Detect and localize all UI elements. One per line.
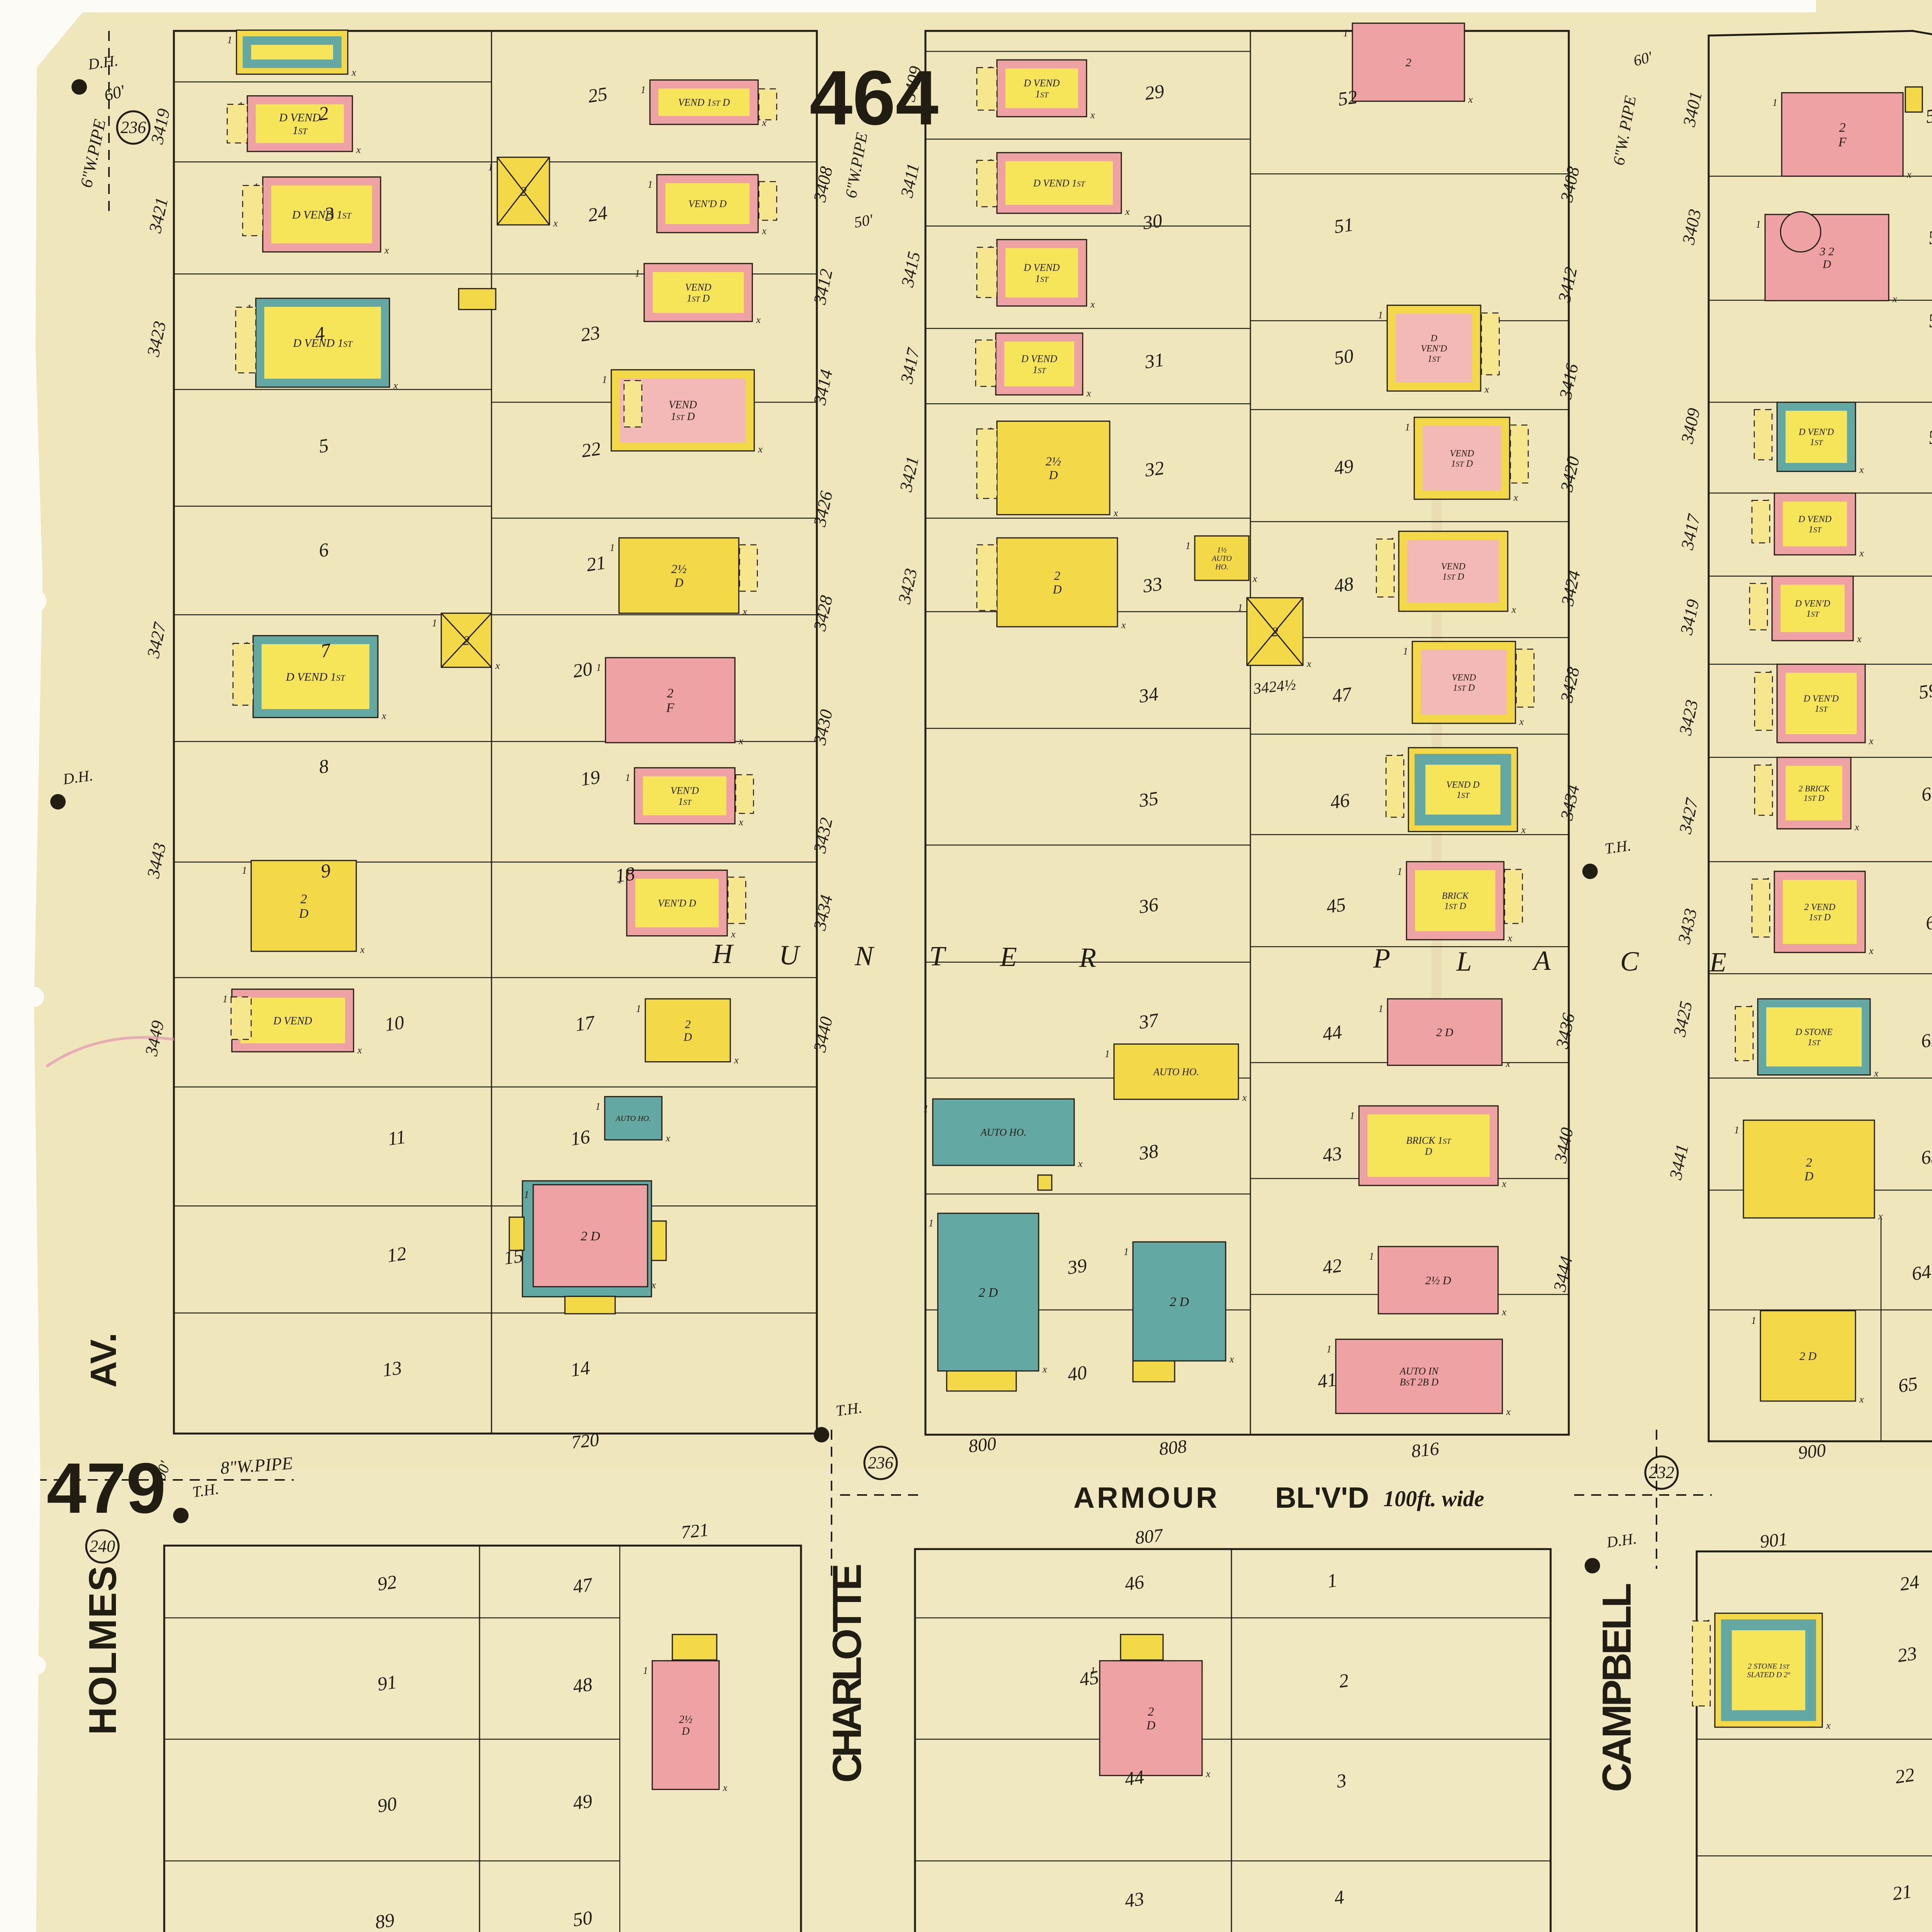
svg-text:x: x	[1206, 1768, 1211, 1779]
svg-text:1ST: 1ST	[1815, 704, 1828, 714]
svg-text:1: 1	[524, 1189, 529, 1200]
svg-text:1: 1	[1378, 1003, 1383, 1014]
svg-text:18: 18	[614, 862, 636, 886]
svg-text:x: x	[1468, 94, 1473, 105]
svg-text:1ST: 1ST	[1808, 525, 1822, 535]
svg-text:2: 2	[1806, 1155, 1812, 1169]
svg-text:2½ D: 2½ D	[1425, 1274, 1451, 1287]
svg-text:23: 23	[1896, 1642, 1918, 1666]
svg-text:AUTO: AUTO	[1211, 554, 1232, 563]
svg-text:2 D: 2 D	[978, 1286, 998, 1300]
svg-text:AUTO HO.: AUTO HO.	[1153, 1066, 1199, 1078]
svg-text:1: 1	[1327, 1344, 1332, 1355]
svg-text:A: A	[1532, 945, 1551, 976]
svg-text:236: 236	[868, 1453, 893, 1472]
svg-text:x: x	[1906, 169, 1912, 180]
svg-text:31: 31	[1143, 349, 1165, 373]
svg-text:1ST: 1ST	[1456, 790, 1470, 800]
svg-text:34: 34	[1137, 683, 1160, 707]
svg-text:89: 89	[374, 1909, 396, 1932]
svg-text:x: x	[1505, 1058, 1510, 1069]
svg-text:1: 1	[1405, 422, 1410, 433]
svg-text:49: 49	[1333, 455, 1355, 479]
svg-text:1: 1	[643, 1665, 648, 1676]
svg-text:1ST: 1ST	[1808, 1037, 1821, 1048]
svg-text:50: 50	[1333, 345, 1355, 369]
svg-text:1: 1	[1369, 1251, 1374, 1262]
svg-text:CHARLOTTE: CHARLOTTE	[825, 1565, 870, 1782]
svg-text:x: x	[1242, 1092, 1247, 1103]
svg-text:D: D	[1048, 468, 1058, 482]
svg-text:x: x	[1859, 548, 1864, 559]
svg-text:24: 24	[587, 202, 609, 226]
svg-text:N: N	[854, 940, 875, 971]
svg-text:47: 47	[1331, 683, 1354, 707]
svg-text:1: 1	[1403, 646, 1408, 657]
svg-text:20: 20	[571, 658, 594, 682]
svg-text:T.H.: T.H.	[191, 1480, 220, 1501]
svg-text:1: 1	[1751, 1315, 1756, 1326]
svg-text:D VEN'D: D VEN'D	[1794, 599, 1830, 609]
svg-text:x: x	[651, 1279, 656, 1291]
svg-text:x: x	[723, 1782, 728, 1793]
svg-text:52: 52	[1337, 86, 1359, 110]
svg-text:VEND 1ST D: VEND 1ST D	[678, 97, 730, 108]
svg-text:VEND: VEND	[685, 282, 711, 293]
svg-text:D: D	[1052, 582, 1061, 596]
svg-text:x: x	[553, 218, 558, 229]
svg-text:19: 19	[579, 766, 601, 790]
svg-text:HO.: HO.	[1215, 563, 1228, 571]
svg-text:D VEND: D VEND	[1023, 77, 1060, 88]
svg-text:808: 808	[1158, 1436, 1188, 1459]
svg-text:C: C	[1620, 946, 1639, 977]
svg-text:1: 1	[223, 993, 228, 1005]
svg-text:21: 21	[585, 551, 607, 575]
svg-text:R: R	[1079, 942, 1096, 973]
svg-text:2 D: 2 D	[581, 1229, 600, 1243]
svg-text:49: 49	[571, 1790, 594, 1814]
svg-text:x: x	[1511, 604, 1516, 615]
svg-text:D: D	[1804, 1169, 1813, 1183]
svg-text:51: 51	[1333, 213, 1355, 237]
svg-text:90: 90	[376, 1793, 398, 1816]
svg-text:D VEND: D VEND	[273, 1015, 312, 1027]
svg-text:22: 22	[1894, 1764, 1916, 1787]
svg-text:800: 800	[968, 1433, 997, 1456]
svg-text:E: E	[1000, 941, 1017, 972]
svg-text:AUTO IN: AUTO IN	[1399, 1366, 1439, 1377]
svg-text:59: 59	[1917, 679, 1932, 703]
svg-text:2: 2	[1406, 56, 1412, 69]
svg-text:64: 64	[1910, 1260, 1932, 1284]
svg-text:x: x	[351, 67, 356, 78]
svg-text:47: 47	[571, 1573, 594, 1598]
svg-text:1: 1	[610, 542, 615, 553]
svg-text:1½: 1½	[1217, 546, 1227, 554]
svg-text:x: x	[1513, 492, 1518, 503]
svg-text:92: 92	[376, 1571, 398, 1595]
svg-text:32: 32	[1143, 457, 1165, 481]
svg-text:2: 2	[301, 892, 307, 906]
svg-text:1: 1	[648, 179, 653, 190]
svg-text:x: x	[393, 380, 398, 391]
svg-text:100ft. wide: 100ft. wide	[1383, 1486, 1484, 1511]
svg-text:x: x	[1252, 573, 1257, 584]
svg-text:2½: 2½	[679, 1714, 692, 1726]
svg-text:11: 11	[386, 1126, 407, 1150]
svg-text:48: 48	[571, 1673, 594, 1697]
svg-text:x: x	[1484, 384, 1489, 395]
svg-text:65: 65	[1897, 1372, 1919, 1396]
svg-text:43: 43	[1321, 1142, 1343, 1166]
svg-text:x: x	[495, 660, 500, 671]
svg-text:2: 2	[1272, 625, 1278, 639]
svg-text:1: 1	[1772, 97, 1777, 108]
svg-text:1: 1	[635, 268, 640, 279]
svg-text:x: x	[1826, 1720, 1831, 1731]
svg-text:VEND D: VEND D	[1446, 780, 1480, 790]
svg-text:2½: 2½	[671, 562, 687, 576]
svg-text:2: 2	[667, 686, 673, 701]
svg-text:240: 240	[90, 1537, 115, 1556]
svg-text:91: 91	[376, 1671, 398, 1695]
svg-text:2: 2	[463, 634, 470, 648]
svg-text:1: 1	[929, 1218, 934, 1229]
svg-text:1: 1	[625, 772, 630, 783]
svg-text:1: 1	[641, 84, 646, 95]
svg-text:AUTO HO.: AUTO HO.	[980, 1127, 1026, 1138]
svg-text:479: 479	[47, 1449, 166, 1528]
svg-text:1: 1	[595, 1101, 600, 1112]
svg-text:816: 816	[1410, 1438, 1440, 1461]
svg-text:15: 15	[502, 1245, 524, 1269]
svg-text:x: x	[1506, 1406, 1511, 1417]
svg-text:P: P	[1373, 943, 1390, 974]
svg-text:x: x	[1090, 109, 1095, 121]
svg-text:2: 2	[520, 184, 527, 199]
svg-text:44: 44	[1123, 1766, 1145, 1790]
svg-text:F: F	[1838, 135, 1847, 150]
svg-text:33: 33	[1141, 573, 1163, 597]
svg-text:901: 901	[1759, 1529, 1789, 1552]
svg-text:D: D	[299, 906, 309, 921]
svg-text:T.H.: T.H.	[835, 1399, 863, 1420]
svg-text:D: D	[674, 575, 683, 589]
svg-text:x: x	[758, 444, 763, 455]
svg-text:39: 39	[1066, 1254, 1088, 1279]
svg-text:2: 2	[685, 1018, 691, 1031]
svg-text:14: 14	[569, 1357, 591, 1381]
svg-text:D VEN'D: D VEN'D	[1803, 694, 1838, 704]
svg-text:x: x	[384, 245, 389, 256]
svg-text:x: x	[738, 735, 743, 747]
svg-text:1: 1	[1350, 1110, 1355, 1121]
svg-text:48: 48	[1333, 573, 1355, 597]
svg-text:HOLMES: HOLMES	[81, 1565, 124, 1735]
svg-text:29: 29	[1143, 80, 1165, 104]
svg-text:2: 2	[1839, 121, 1846, 135]
svg-text:x: x	[1507, 932, 1512, 944]
svg-text:2 STONE 1ST: 2 STONE 1ST	[1748, 1662, 1790, 1671]
svg-text:46: 46	[1329, 789, 1351, 813]
svg-text:1: 1	[227, 34, 232, 46]
svg-text:ARMOUR: ARMOUR	[1073, 1481, 1219, 1514]
svg-text:35: 35	[1137, 787, 1160, 811]
svg-text:2 D: 2 D	[1799, 1350, 1817, 1363]
svg-text:BL'V'D: BL'V'D	[1275, 1481, 1369, 1514]
svg-text:2 BRICK: 2 BRICK	[1798, 784, 1830, 793]
svg-text:721: 721	[680, 1519, 710, 1543]
svg-text:2 D: 2 D	[1170, 1295, 1189, 1309]
svg-text:x: x	[1892, 293, 1897, 304]
svg-text:22: 22	[580, 437, 602, 461]
svg-text:x: x	[357, 1044, 362, 1056]
svg-text:x: x	[665, 1133, 670, 1144]
svg-text:3 2: 3 2	[1819, 245, 1834, 258]
svg-text:VEN'D: VEN'D	[670, 785, 699, 796]
svg-text:1: 1	[636, 1003, 641, 1014]
svg-text:x: x	[1869, 945, 1874, 956]
svg-text:x: x	[1502, 1178, 1507, 1189]
svg-text:40: 40	[1066, 1361, 1088, 1385]
svg-text:13: 13	[381, 1357, 403, 1381]
svg-text:1: 1	[923, 1103, 929, 1114]
svg-text:38: 38	[1137, 1140, 1160, 1164]
svg-text:D VEND: D VEND	[279, 111, 321, 124]
svg-text:1ST: 1ST	[1810, 437, 1823, 447]
svg-text:VEN'D D: VEN'D D	[658, 898, 696, 909]
svg-text:900: 900	[1797, 1440, 1827, 1463]
svg-text:D VEND: D VEND	[1798, 514, 1832, 524]
svg-text:VEND: VEND	[668, 399, 697, 411]
svg-text:10: 10	[383, 1011, 405, 1035]
svg-text:25: 25	[587, 83, 609, 107]
svg-text:1: 1	[1343, 27, 1348, 39]
svg-text:x: x	[1090, 299, 1095, 310]
svg-text:44: 44	[1321, 1021, 1343, 1045]
svg-text:D: D	[1146, 1718, 1155, 1732]
svg-text:x: x	[742, 606, 747, 617]
svg-text:50: 50	[571, 1906, 594, 1930]
svg-text:2 D: 2 D	[1436, 1026, 1454, 1039]
svg-text:BST 2B D: BST 2B D	[1400, 1376, 1439, 1388]
svg-text:SLATED D 2º: SLATED D 2º	[1747, 1671, 1790, 1679]
svg-text:1ST D: 1ST D	[1804, 793, 1825, 803]
svg-text:x: x	[756, 314, 761, 325]
svg-text:1ST D: 1ST D	[1444, 901, 1466, 912]
svg-text:H: H	[712, 938, 734, 969]
svg-text:45: 45	[1078, 1666, 1100, 1690]
svg-text:1: 1	[1734, 1124, 1739, 1136]
svg-text:D: D	[1822, 258, 1831, 271]
svg-text:x: x	[1113, 507, 1118, 519]
svg-text:D VEN'D: D VEN'D	[1798, 427, 1834, 437]
svg-text:x: x	[738, 816, 743, 828]
svg-text:16: 16	[569, 1126, 591, 1150]
svg-text:BRICK: BRICK	[1442, 891, 1469, 901]
svg-text:43: 43	[1123, 1888, 1145, 1912]
svg-text:x: x	[1125, 206, 1130, 217]
svg-text:236: 236	[121, 118, 146, 137]
svg-text:CAMPBELL: CAMPBELL	[1594, 1584, 1639, 1792]
svg-text:2 VEND: 2 VEND	[1804, 902, 1835, 912]
svg-text:1ST: 1ST	[1806, 609, 1820, 619]
svg-text:x: x	[1521, 824, 1526, 835]
svg-text:12: 12	[386, 1242, 408, 1266]
svg-text:x: x	[360, 944, 365, 955]
svg-text:41: 41	[1316, 1368, 1338, 1392]
svg-text:x: x	[1874, 1068, 1879, 1079]
svg-text:x: x	[1859, 464, 1864, 475]
svg-text:x: x	[381, 710, 386, 721]
svg-text:1: 1	[1124, 1246, 1129, 1257]
svg-text:x: x	[1121, 619, 1126, 631]
svg-text:21: 21	[1891, 1880, 1913, 1904]
svg-text:37: 37	[1137, 1009, 1160, 1033]
svg-text:x: x	[1878, 1211, 1883, 1222]
svg-text:2: 2	[1054, 569, 1060, 583]
svg-text:50': 50'	[853, 211, 875, 231]
svg-text:D: D	[1430, 333, 1437, 344]
svg-text:T: T	[929, 940, 947, 971]
svg-text:17: 17	[574, 1011, 597, 1036]
svg-text:1: 1	[602, 374, 607, 385]
svg-text:1: 1	[1397, 866, 1402, 877]
svg-text:E: E	[1709, 947, 1726, 978]
svg-text:1: 1	[1238, 602, 1243, 613]
svg-text:1ST D: 1ST D	[1451, 459, 1473, 469]
svg-text:VEN'D: VEN'D	[1421, 344, 1447, 354]
svg-text:x: x	[762, 225, 767, 236]
svg-text:x: x	[356, 144, 361, 155]
svg-text:807: 807	[1134, 1525, 1165, 1548]
svg-text:232: 232	[1649, 1463, 1674, 1482]
svg-text:1ST D: 1ST D	[1809, 913, 1830, 923]
svg-text:T.H.: T.H.	[1604, 837, 1632, 857]
svg-text:VEN'D D: VEN'D D	[689, 198, 727, 209]
svg-text:30: 30	[1141, 209, 1163, 234]
svg-text:x: x	[1519, 716, 1524, 727]
svg-text:x: x	[1502, 1306, 1507, 1318]
svg-text:23: 23	[579, 321, 601, 345]
svg-text:x: x	[1857, 633, 1862, 645]
svg-text:L: L	[1456, 946, 1472, 977]
svg-text:D: D	[681, 1726, 689, 1738]
svg-text:2½: 2½	[1046, 454, 1061, 468]
svg-text:x: x	[1306, 658, 1311, 669]
svg-text:1: 1	[1756, 219, 1761, 230]
svg-text:D STONE: D STONE	[1795, 1027, 1833, 1037]
svg-text:24: 24	[1898, 1571, 1920, 1595]
svg-text:D: D	[1425, 1146, 1432, 1157]
svg-text:720: 720	[570, 1429, 600, 1452]
svg-text:VEND: VEND	[1441, 562, 1466, 572]
svg-text:D: D	[683, 1031, 692, 1044]
svg-text:46: 46	[1123, 1571, 1145, 1595]
svg-text:1: 1	[596, 662, 601, 673]
svg-text:1ST D: 1ST D	[1442, 572, 1464, 582]
svg-text:D VEND: D VEND	[1021, 353, 1057, 364]
svg-text:x: x	[1859, 1394, 1864, 1405]
svg-text:x: x	[1078, 1158, 1083, 1169]
svg-text:x: x	[1086, 388, 1091, 399]
svg-text:F: F	[666, 701, 675, 715]
svg-text:x: x	[734, 1054, 739, 1066]
svg-text:AV.: AV.	[83, 1333, 124, 1388]
svg-text:1: 1	[432, 617, 437, 629]
svg-text:1ST D: 1ST D	[1453, 683, 1475, 693]
svg-text:VEND: VEND	[1452, 673, 1476, 683]
svg-text:42: 42	[1321, 1254, 1343, 1278]
svg-text:D VEND: D VEND	[1023, 262, 1060, 273]
svg-text:x: x	[1854, 821, 1859, 833]
svg-text:45: 45	[1325, 893, 1347, 917]
svg-text:AUTO HO.: AUTO HO.	[615, 1114, 651, 1123]
svg-text:1: 1	[488, 162, 493, 173]
svg-text:36: 36	[1137, 893, 1160, 918]
svg-text:VEND: VEND	[1450, 449, 1474, 459]
svg-text:1ST: 1ST	[1427, 354, 1441, 364]
svg-text:1: 1	[242, 865, 247, 876]
svg-text:1: 1	[1105, 1048, 1110, 1060]
svg-text:U: U	[779, 940, 801, 971]
svg-text:x: x	[1229, 1354, 1234, 1365]
svg-text:x: x	[1042, 1364, 1047, 1375]
svg-text:1: 1	[1185, 540, 1190, 551]
svg-text:1: 1	[1378, 310, 1383, 321]
svg-text:2: 2	[1148, 1704, 1154, 1718]
svg-text:x: x	[1869, 735, 1874, 747]
